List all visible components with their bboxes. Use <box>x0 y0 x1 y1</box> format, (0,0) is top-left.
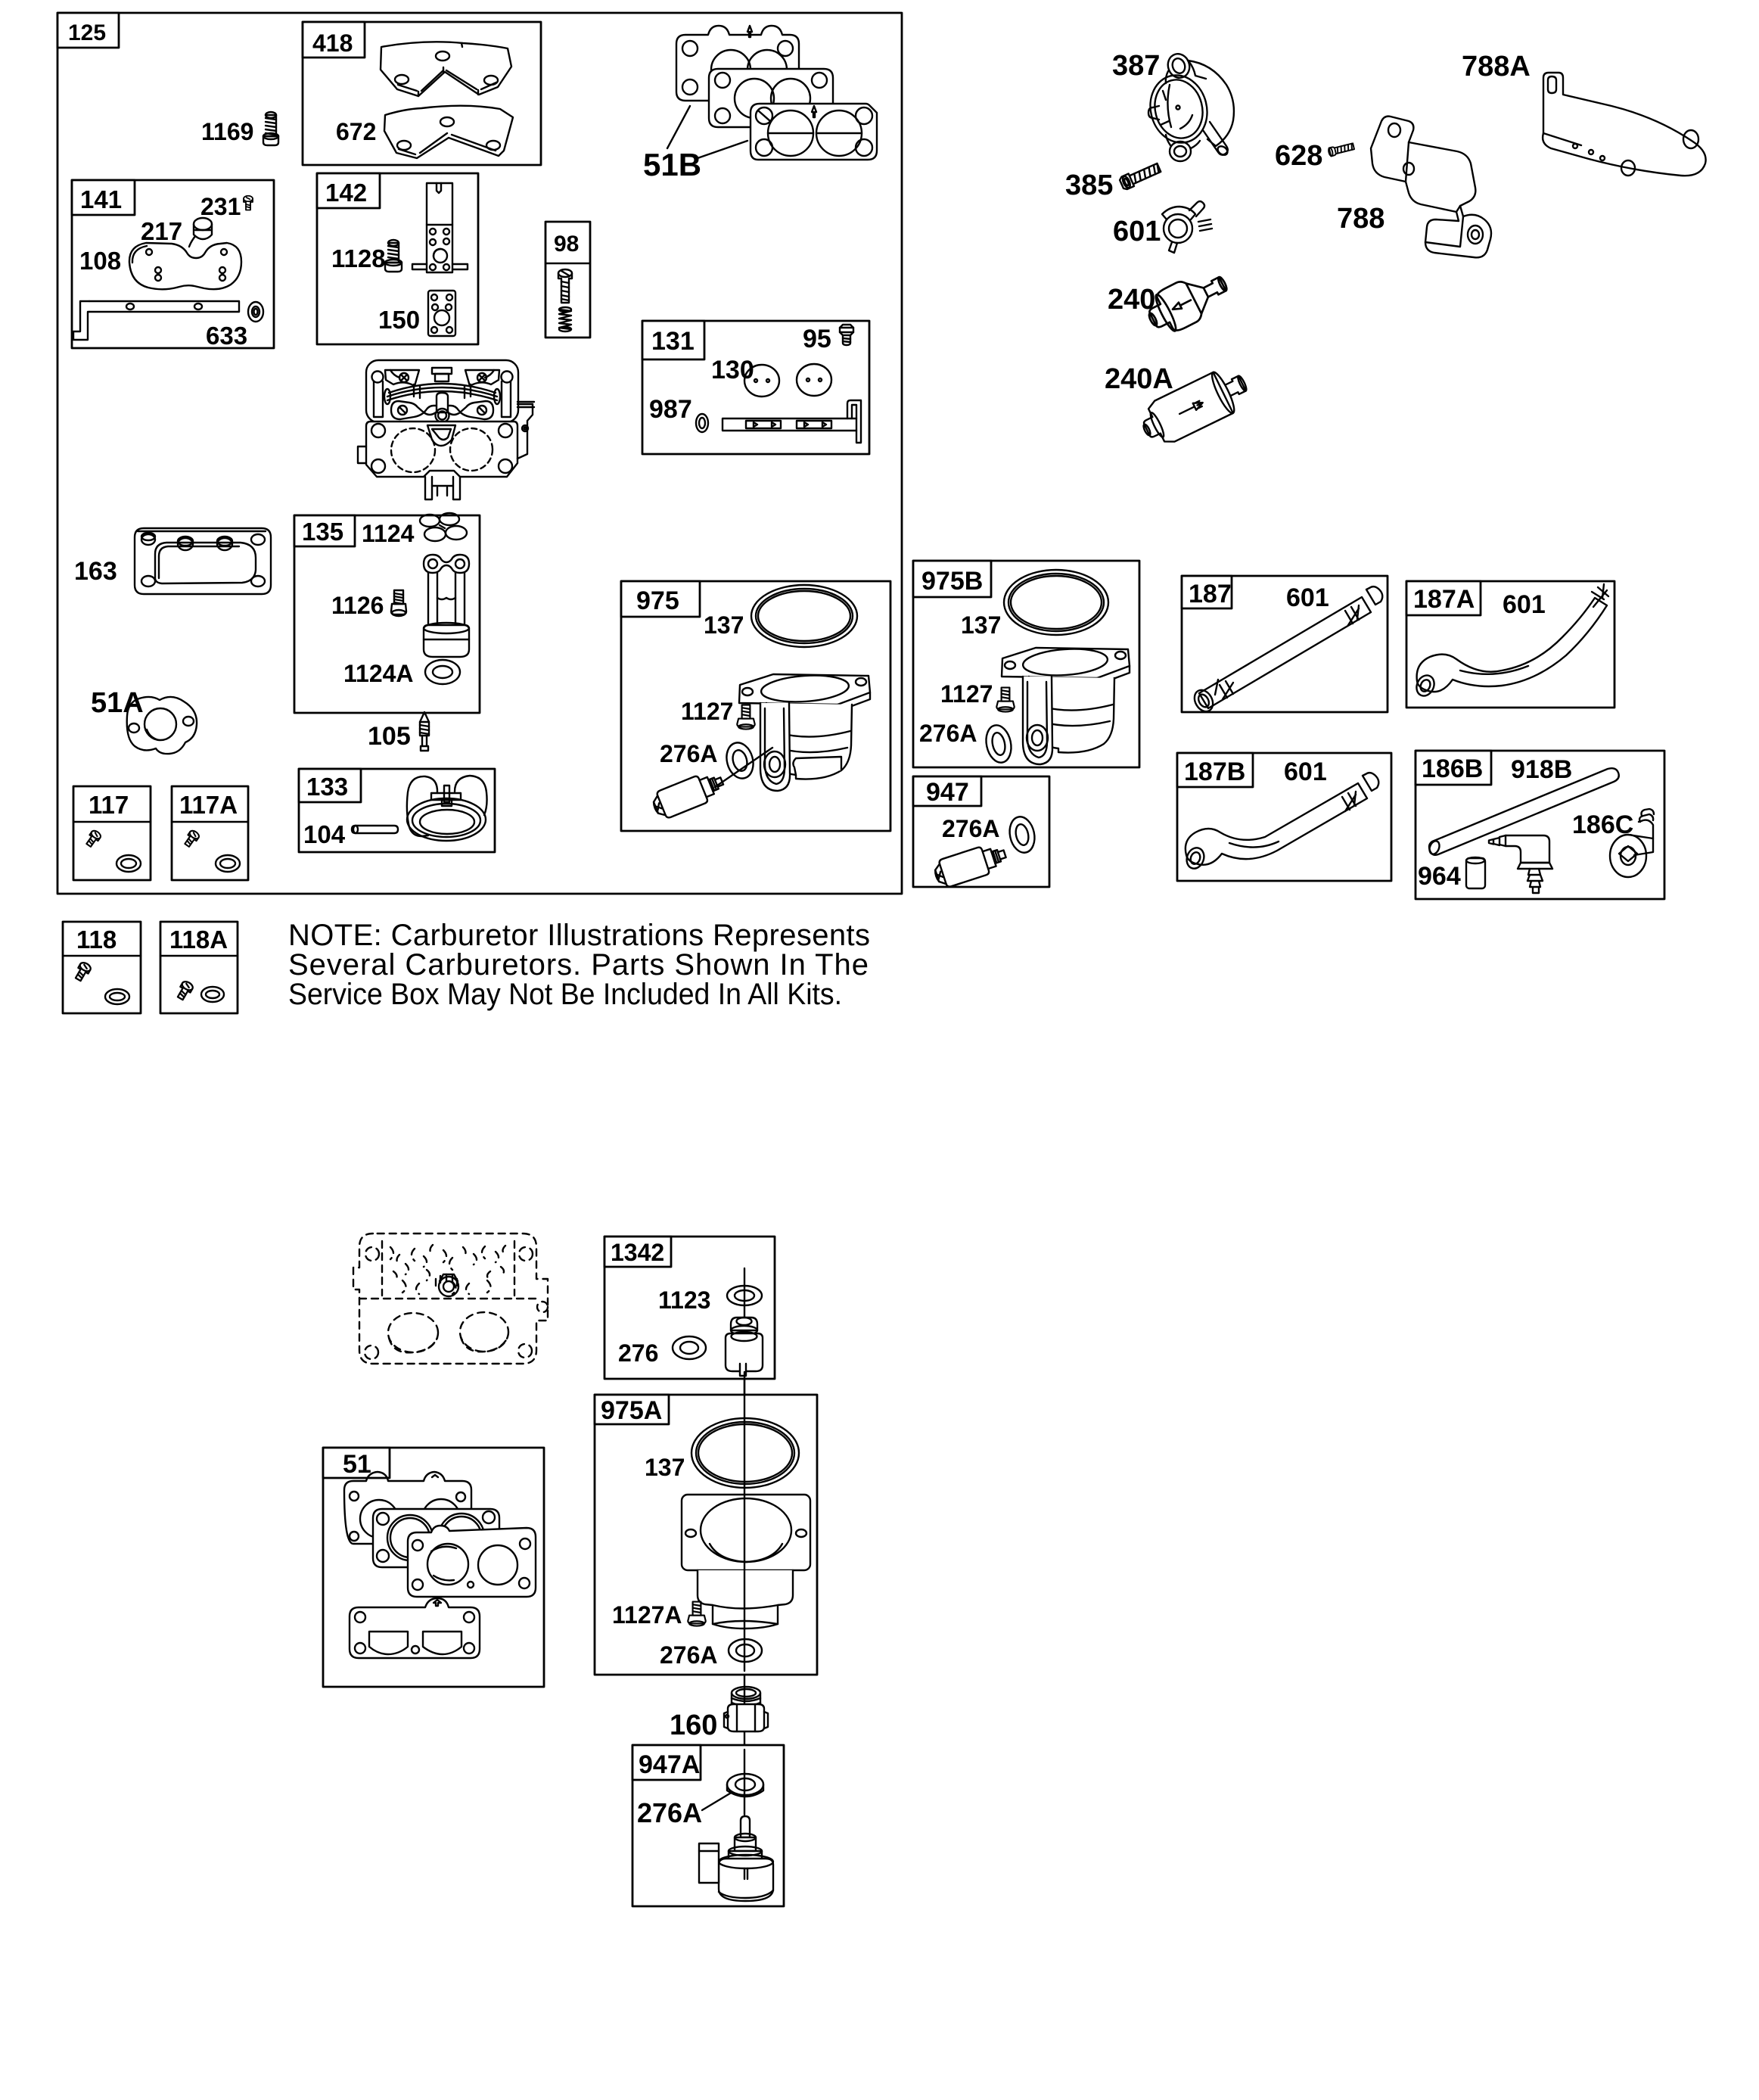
svg-text:1128: 1128 <box>331 244 386 272</box>
svg-text:108: 108 <box>79 247 121 275</box>
svg-text:387: 387 <box>1112 50 1160 82</box>
svg-text:385: 385 <box>1065 170 1113 201</box>
svg-text:975B: 975B <box>921 567 983 596</box>
svg-text:1127A: 1127A <box>612 1601 682 1629</box>
svg-text:95: 95 <box>803 325 831 353</box>
svg-text:628: 628 <box>1275 140 1322 172</box>
svg-text:137: 137 <box>961 611 1001 639</box>
svg-text:187: 187 <box>1189 580 1232 608</box>
svg-text:141: 141 <box>80 185 122 213</box>
svg-text:964: 964 <box>1418 862 1461 891</box>
svg-text:1126: 1126 <box>331 592 384 619</box>
svg-text:Service Box May Not Be Include: Service Box May Not Be Included In All K… <box>288 978 842 1011</box>
svg-text:186B: 186B <box>1422 754 1483 783</box>
svg-text:117: 117 <box>89 791 129 819</box>
svg-text:276A: 276A <box>660 740 718 767</box>
svg-text:987: 987 <box>649 395 692 424</box>
svg-text:187B: 187B <box>1184 758 1245 786</box>
svg-text:601: 601 <box>1113 216 1161 247</box>
svg-text:276A: 276A <box>942 815 1000 842</box>
svg-text:231: 231 <box>200 193 241 220</box>
svg-text:276A: 276A <box>637 1797 702 1828</box>
svg-text:1342: 1342 <box>611 1239 664 1266</box>
svg-text:975A: 975A <box>601 1396 662 1425</box>
svg-text:NOTE: Carburetor Illustrations: NOTE: Carburetor Illustrations Represent… <box>288 919 870 952</box>
svg-text:276A: 276A <box>919 720 977 747</box>
svg-text:104: 104 <box>303 820 346 848</box>
svg-text:142: 142 <box>325 179 367 207</box>
svg-text:133: 133 <box>306 773 348 801</box>
svg-text:1127: 1127 <box>940 680 993 708</box>
svg-text:Several Carburetors. Parts Sho: Several Carburetors. Parts Shown In The <box>288 948 869 982</box>
svg-text:1124A: 1124A <box>343 660 414 687</box>
svg-text:240A: 240A <box>1105 363 1173 395</box>
svg-text:1169: 1169 <box>201 118 253 145</box>
svg-text:788A: 788A <box>1462 51 1531 82</box>
svg-text:150: 150 <box>378 306 420 334</box>
svg-text:975: 975 <box>636 586 679 615</box>
svg-text:131: 131 <box>651 327 695 356</box>
svg-text:217: 217 <box>141 217 182 245</box>
svg-text:918B: 918B <box>1511 755 1572 784</box>
svg-text:51A: 51A <box>91 687 144 719</box>
svg-text:240: 240 <box>1108 284 1155 316</box>
svg-text:125: 125 <box>68 20 106 45</box>
svg-text:947A: 947A <box>639 1750 700 1779</box>
svg-text:160: 160 <box>670 1710 717 1741</box>
svg-text:51: 51 <box>343 1450 371 1479</box>
svg-text:137: 137 <box>645 1454 685 1481</box>
svg-text:51B: 51B <box>643 147 701 182</box>
svg-text:98: 98 <box>554 232 579 257</box>
svg-text:187A: 187A <box>1413 585 1475 614</box>
svg-text:105: 105 <box>368 722 411 751</box>
svg-text:1127: 1127 <box>681 698 733 725</box>
svg-text:601: 601 <box>1284 758 1327 786</box>
svg-text:1123: 1123 <box>658 1286 710 1314</box>
svg-text:118: 118 <box>76 926 117 954</box>
svg-text:633: 633 <box>206 322 247 350</box>
svg-text:1124: 1124 <box>362 520 415 547</box>
svg-text:601: 601 <box>1503 590 1546 619</box>
svg-text:947: 947 <box>926 778 969 807</box>
svg-text:276: 276 <box>618 1339 658 1367</box>
svg-text:601: 601 <box>1286 583 1329 612</box>
svg-text:163: 163 <box>74 557 117 586</box>
svg-text:672: 672 <box>336 118 376 145</box>
svg-text:276A: 276A <box>660 1641 718 1669</box>
svg-text:137: 137 <box>704 611 744 639</box>
svg-text:418: 418 <box>312 30 353 57</box>
svg-text:118A: 118A <box>169 926 228 954</box>
svg-text:135: 135 <box>302 518 343 546</box>
svg-text:788: 788 <box>1337 203 1385 235</box>
svg-text:117A: 117A <box>179 791 238 819</box>
